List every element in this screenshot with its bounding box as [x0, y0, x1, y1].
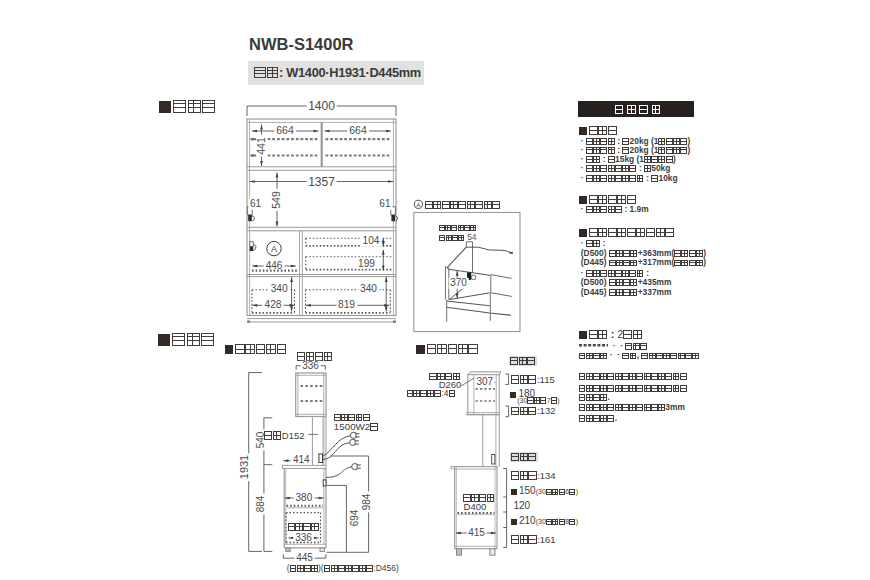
svg-text:A: A: [416, 201, 421, 208]
